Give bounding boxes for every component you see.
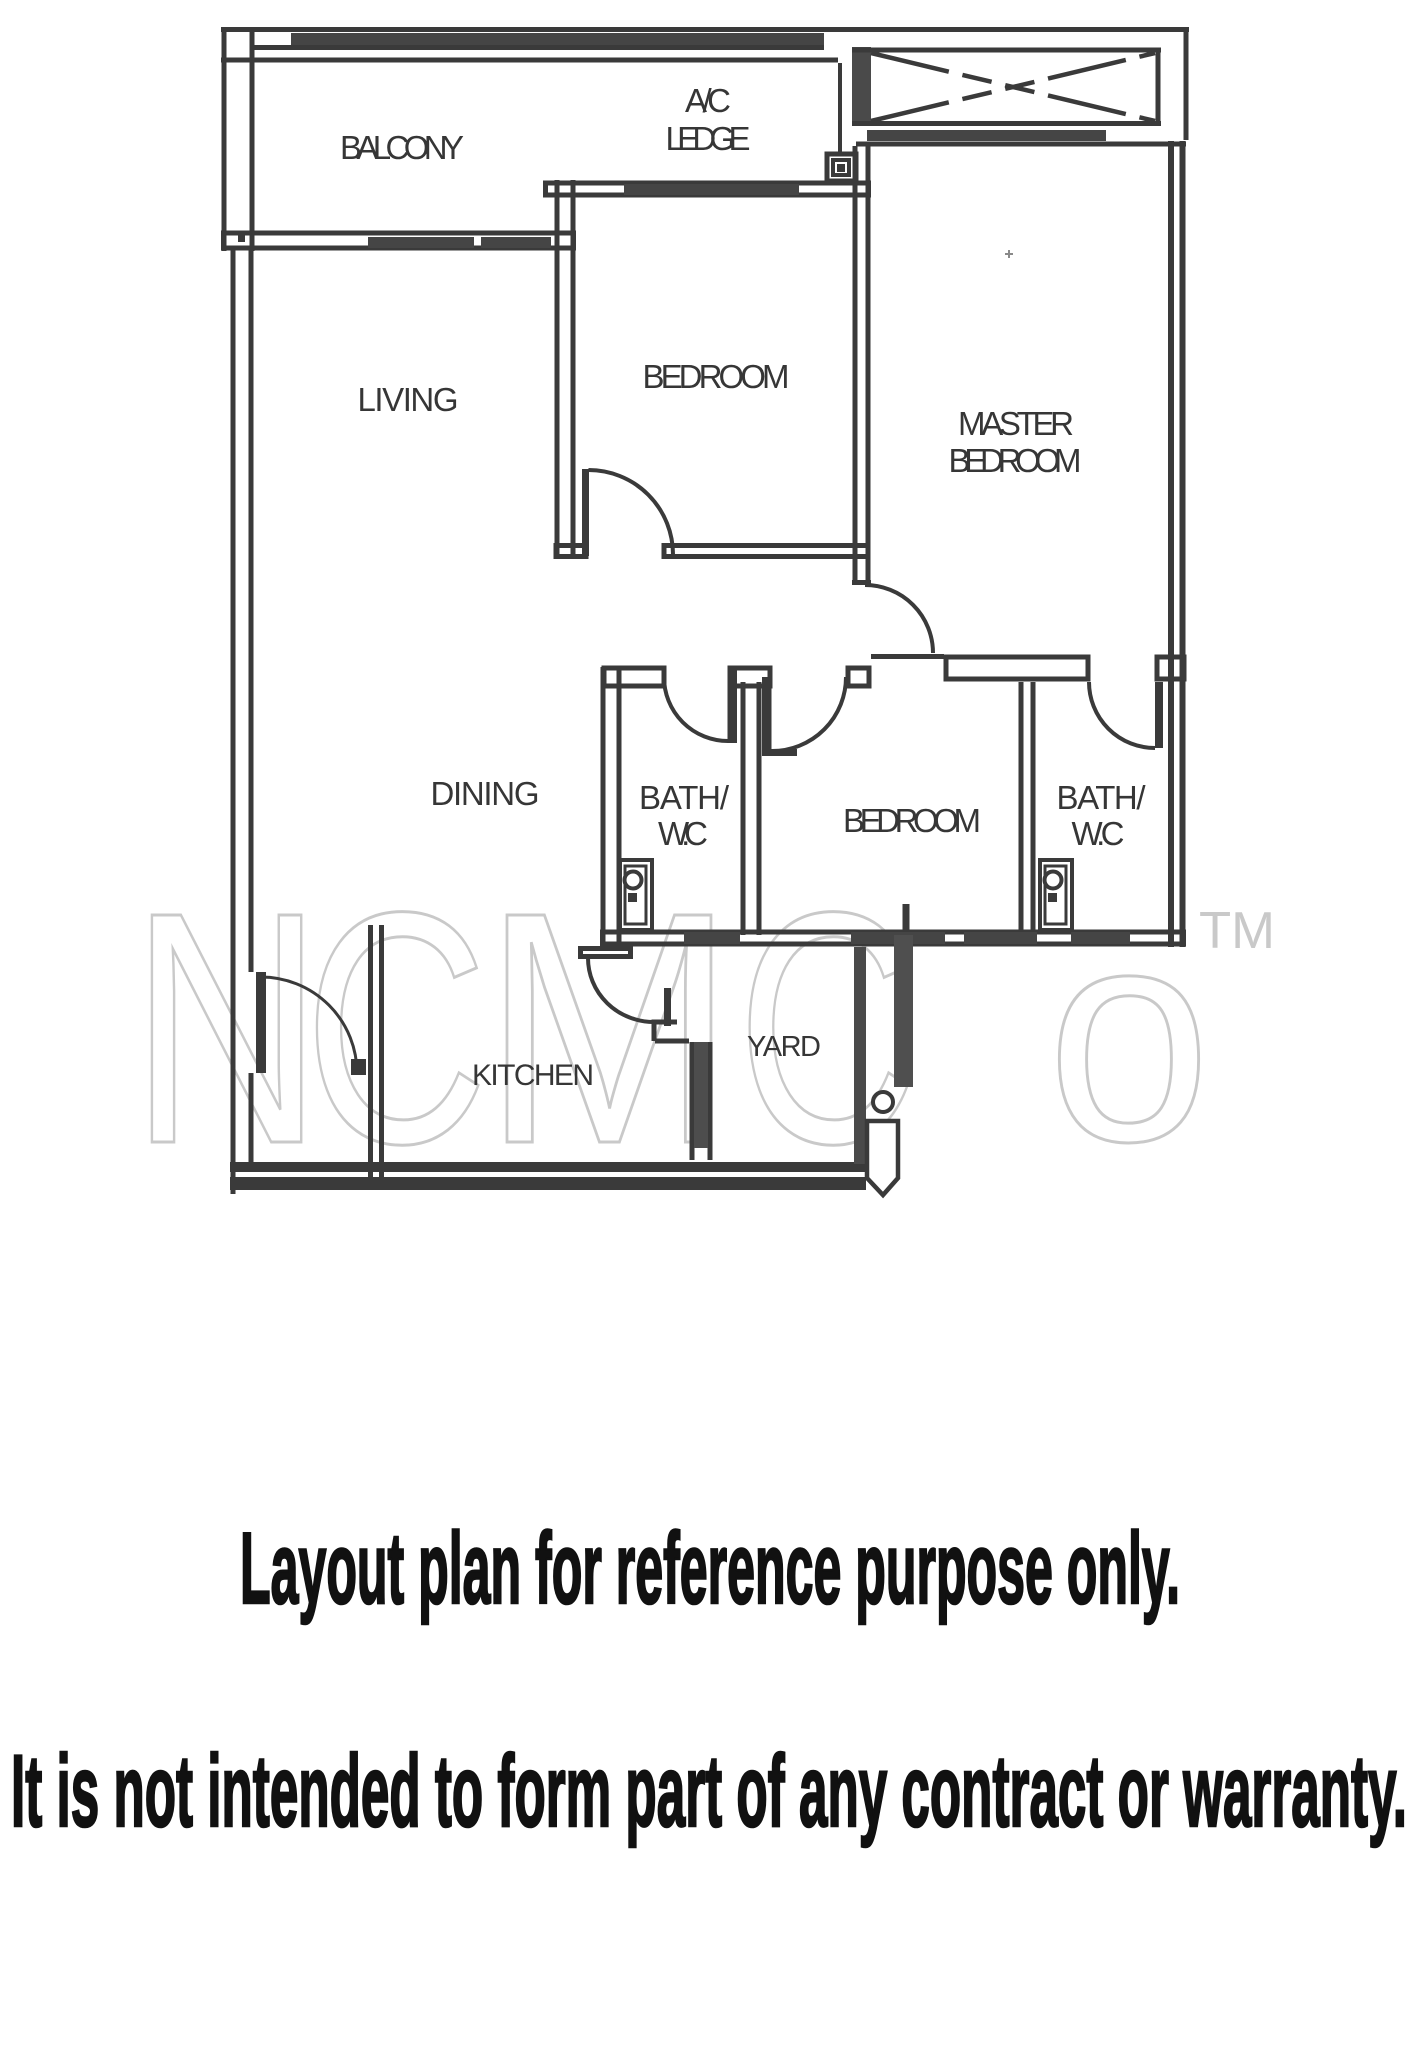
- svg-text:W.C: W.C: [658, 815, 708, 852]
- svg-text:BEDROOM: BEDROOM: [949, 442, 1082, 479]
- svg-text:LEDGE: LEDGE: [666, 120, 751, 157]
- svg-text:BATH/: BATH/: [1057, 779, 1147, 816]
- svg-text:LIVING: LIVING: [358, 381, 459, 418]
- svg-text:It is not intended to form par: It is not intended to form part of any c…: [11, 1734, 1407, 1848]
- svg-text:DINING: DINING: [431, 775, 540, 812]
- svg-text:Layout plan for reference purp: Layout plan for reference purpose only.: [240, 1513, 1180, 1625]
- svg-text:BALCONY: BALCONY: [340, 129, 464, 166]
- svg-text:TM: TM: [1199, 902, 1275, 960]
- svg-text:N: N: [130, 843, 323, 1212]
- svg-text:MASTER: MASTER: [958, 405, 1074, 442]
- svg-text:BATH/: BATH/: [639, 779, 730, 816]
- svg-text:YARD: YARD: [747, 1031, 821, 1063]
- svg-text:A/C: A/C: [685, 82, 731, 119]
- svg-text:BEDROOM: BEDROOM: [643, 358, 790, 395]
- svg-text:BEDROOM: BEDROOM: [843, 802, 981, 839]
- svg-text:C: C: [304, 843, 488, 1212]
- svg-text:W.C: W.C: [1072, 815, 1125, 852]
- svg-text:KITCHEN: KITCHEN: [472, 1059, 594, 1092]
- svg-text:M: M: [482, 843, 736, 1212]
